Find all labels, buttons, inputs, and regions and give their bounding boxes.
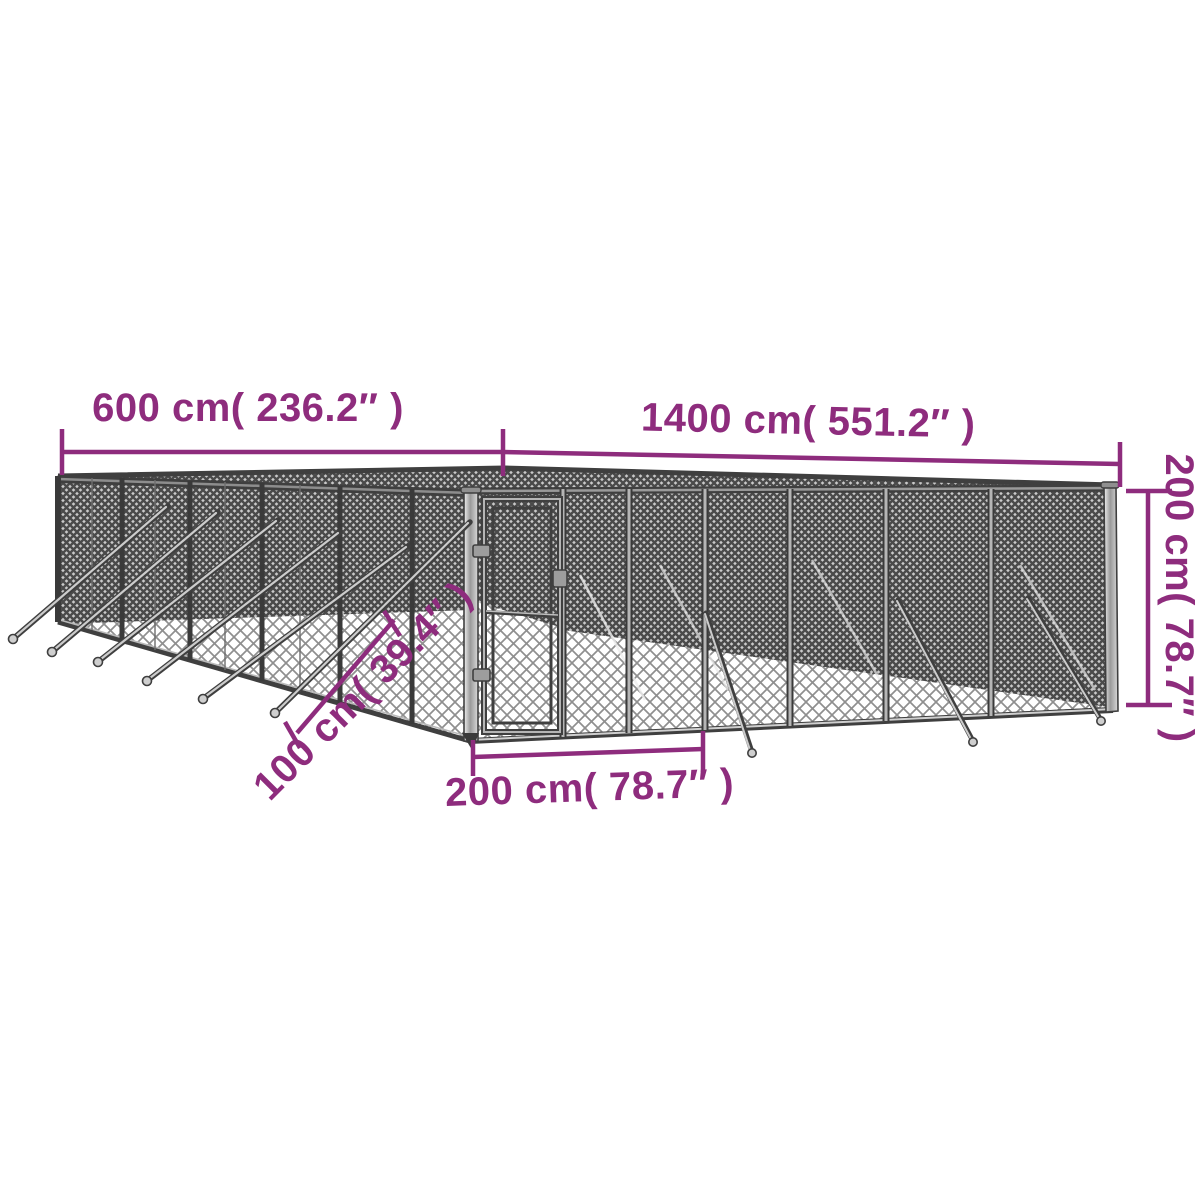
brace-foot <box>969 738 977 746</box>
brace-foot <box>271 709 280 718</box>
brace-foot <box>1097 717 1105 725</box>
front-wall <box>470 482 1119 741</box>
post-cap <box>1101 482 1119 488</box>
left-wall <box>58 476 470 741</box>
kennel-drawing: 600 cm( 236.2″ ) 1400 cm( 551.2″ ) 200 c… <box>9 386 1200 815</box>
brace-foot <box>199 695 208 704</box>
brace-foot <box>143 677 152 686</box>
brace-foot <box>48 648 57 657</box>
brace-foot <box>9 635 18 644</box>
kennel-dimension-diagram: 600 cm( 236.2″ ) 1400 cm( 551.2″ ) 200 c… <box>0 0 1200 1200</box>
dimension-depth-600cm: 600 cm( 236.2″ ) <box>62 386 503 476</box>
dimension-label-length: 1400 cm( 551.2″ ) <box>641 396 976 447</box>
brace-foot <box>748 749 756 757</box>
gate-hinge-top <box>473 545 490 557</box>
dimension-label-gate: 200 cm( 78.7″ ) <box>444 761 734 815</box>
brace-foot <box>94 658 103 667</box>
gate-hinge-bottom <box>473 669 490 681</box>
dimension-gate-200cm: 200 cm( 78.7″ ) <box>444 731 734 815</box>
post-cap <box>461 487 481 493</box>
gate-latch <box>553 570 567 587</box>
dimension-label-depth: 600 cm( 236.2″ ) <box>92 386 404 430</box>
dimension-label-height: 200 cm( 78.7″ ) <box>1157 453 1200 742</box>
dimension-height-200cm: 200 cm( 78.7″ ) <box>1126 453 1200 742</box>
